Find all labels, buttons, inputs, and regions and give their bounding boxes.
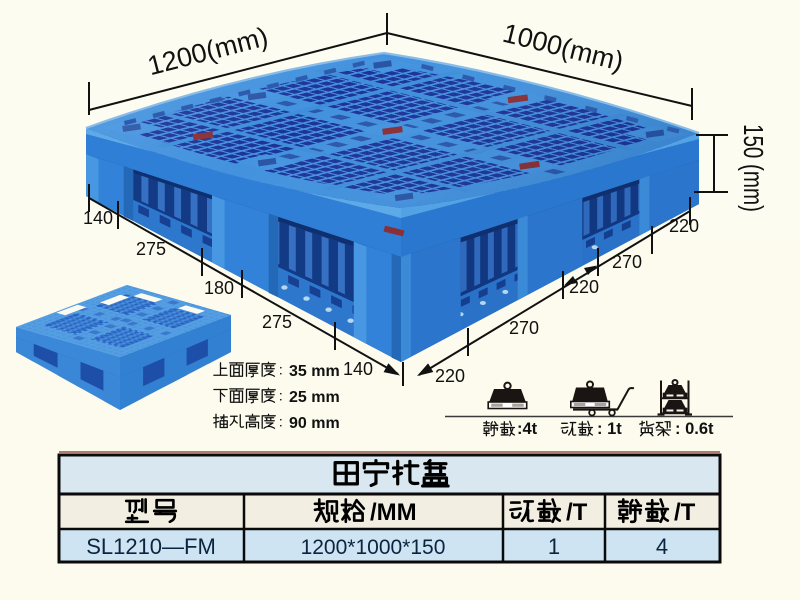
svg-text:220: 220 <box>435 366 465 386</box>
svg-text:: 1t: : 1t <box>597 420 622 438</box>
svg-text:25 mm: 25 mm <box>289 389 340 406</box>
svg-text:: 0.6t: : 0.6t <box>675 420 714 438</box>
svg-text:90 mm: 90 mm <box>289 415 340 432</box>
svg-text:220: 220 <box>669 216 699 236</box>
svg-text:275: 275 <box>262 312 292 332</box>
svg-text:270: 270 <box>612 252 642 272</box>
svg-text:180: 180 <box>204 278 234 298</box>
svg-text:1200*1000*150: 1200*1000*150 <box>301 536 446 559</box>
svg-text:150 (mm): 150 (mm) <box>738 124 769 212</box>
svg-text:140: 140 <box>83 208 113 228</box>
svg-text:4: 4 <box>656 534 668 559</box>
svg-text:140: 140 <box>343 359 373 379</box>
svg-text:SL1210—FM: SL1210—FM <box>86 534 216 559</box>
svg-text:275: 275 <box>136 239 166 259</box>
svg-text::4t: :4t <box>517 420 538 438</box>
svg-text:/T: /T <box>674 499 696 526</box>
svg-text:35 mm: 35 mm <box>289 363 340 380</box>
svg-text:/T: /T <box>566 499 588 526</box>
svg-text:270: 270 <box>509 318 539 338</box>
svg-text:/MM: /MM <box>370 499 417 526</box>
svg-text:220: 220 <box>569 277 599 297</box>
svg-text:1: 1 <box>548 534 560 559</box>
